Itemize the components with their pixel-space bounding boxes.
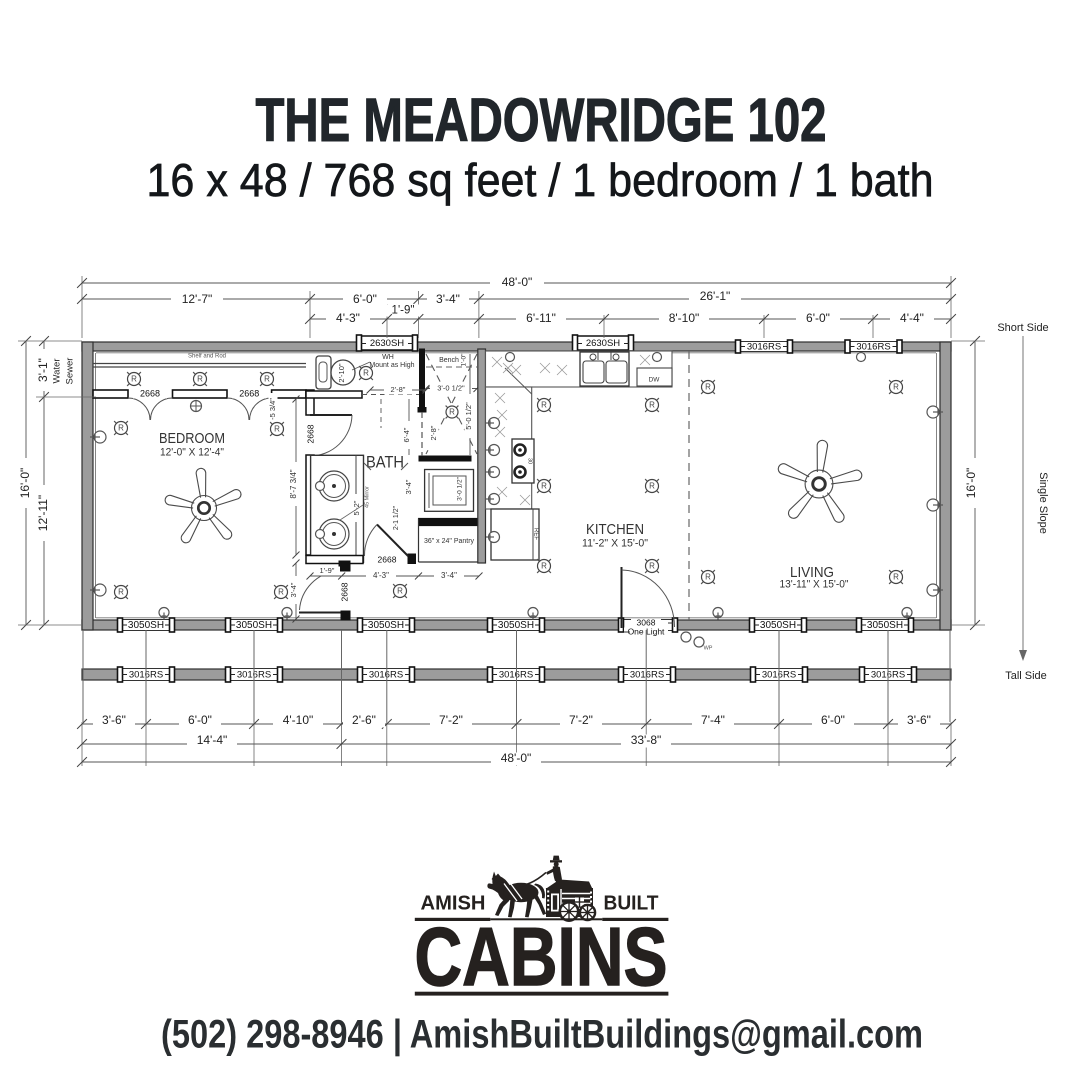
svg-text:Bench: Bench bbox=[439, 357, 459, 364]
svg-text:26'-1": 26'-1" bbox=[700, 289, 731, 303]
svg-text:WH: WH bbox=[382, 354, 394, 361]
svg-text:DW: DW bbox=[649, 377, 661, 384]
svg-text:R: R bbox=[278, 588, 284, 597]
svg-text:BEDROOM: BEDROOM bbox=[159, 430, 225, 447]
svg-text:4'-3": 4'-3" bbox=[336, 311, 360, 325]
svg-text:5'-0 1/2": 5'-0 1/2" bbox=[464, 402, 473, 430]
svg-text:R: R bbox=[649, 401, 655, 410]
svg-text:3050SH: 3050SH bbox=[760, 620, 796, 631]
svg-text:1'-0": 1'-0" bbox=[461, 353, 468, 367]
svg-text:Shelf and Rod: Shelf and Rod bbox=[188, 354, 226, 360]
svg-text:WP: WP bbox=[704, 645, 713, 651]
svg-text:R: R bbox=[449, 408, 455, 417]
svg-text:2630SH: 2630SH bbox=[370, 338, 404, 349]
svg-text:14'-4": 14'-4" bbox=[197, 733, 228, 747]
svg-text:7'-2": 7'-2" bbox=[569, 713, 593, 727]
svg-text:3050SH: 3050SH bbox=[128, 620, 164, 631]
svg-text:R: R bbox=[274, 425, 280, 434]
svg-text:3'-6": 3'-6" bbox=[907, 713, 931, 727]
svg-text:Tall Side: Tall Side bbox=[1005, 670, 1047, 682]
svg-text:2-1 1/2": 2-1 1/2" bbox=[393, 505, 400, 530]
svg-text:30: 30 bbox=[527, 458, 533, 464]
svg-text:2668: 2668 bbox=[140, 388, 160, 398]
svg-text:5'-2": 5'-2" bbox=[352, 500, 361, 515]
svg-text:3'-4": 3'-4" bbox=[404, 479, 413, 494]
svg-text:R: R bbox=[363, 369, 369, 378]
svg-text:2'-8": 2'-8" bbox=[429, 425, 438, 440]
svg-text:3'-1": 3'-1" bbox=[36, 358, 50, 382]
svg-text:R: R bbox=[541, 482, 547, 491]
svg-text:4'-4": 4'-4" bbox=[900, 311, 924, 325]
svg-text:3016RS: 3016RS bbox=[856, 342, 890, 353]
svg-text:4'-3": 4'-3" bbox=[373, 571, 389, 580]
svg-text:12'-11": 12'-11" bbox=[36, 495, 50, 531]
svg-text:R: R bbox=[118, 588, 124, 597]
svg-text:R: R bbox=[264, 375, 270, 384]
svg-text:2668: 2668 bbox=[339, 582, 349, 601]
svg-text:-5 3/4": -5 3/4" bbox=[268, 398, 277, 420]
svg-text:R: R bbox=[649, 482, 655, 491]
svg-text:45 Mirror: 45 Mirror bbox=[364, 486, 370, 508]
svg-text:R: R bbox=[131, 375, 137, 384]
svg-text:3'-0 1/2": 3'-0 1/2" bbox=[457, 476, 464, 500]
svg-text:2668: 2668 bbox=[239, 388, 259, 398]
svg-text:2'-6": 2'-6" bbox=[352, 713, 376, 727]
svg-text:R: R bbox=[893, 383, 899, 392]
svg-text:3016RS: 3016RS bbox=[369, 670, 403, 681]
svg-text:3'-4": 3'-4" bbox=[289, 582, 298, 597]
svg-text:R: R bbox=[541, 562, 547, 571]
svg-text:13'-11" X 15'-0": 13'-11" X 15'-0" bbox=[780, 578, 849, 590]
svg-text:R: R bbox=[649, 562, 655, 571]
svg-text:8'-7 3/4": 8'-7 3/4" bbox=[289, 469, 298, 498]
svg-text:REF: REF bbox=[532, 528, 538, 540]
svg-text:R: R bbox=[197, 375, 203, 384]
svg-text:3016RS: 3016RS bbox=[630, 670, 664, 681]
svg-text:R: R bbox=[541, 401, 547, 410]
svg-text:2'-8": 2'-8" bbox=[391, 385, 406, 394]
svg-text:3050SH: 3050SH bbox=[498, 620, 534, 631]
svg-text:(502) 298-8946 | AmishBuiltBui: (502) 298-8946 | AmishBuiltBuildings@gma… bbox=[161, 1013, 923, 1057]
svg-text:Single Slope: Single Slope bbox=[1037, 472, 1049, 534]
svg-text:6'-0": 6'-0" bbox=[821, 713, 845, 727]
svg-text:6'-0": 6'-0" bbox=[353, 292, 377, 306]
svg-text:3016RS: 3016RS bbox=[747, 342, 781, 353]
svg-text:48'-0": 48'-0" bbox=[502, 275, 533, 289]
svg-text:Sewer: Sewer bbox=[65, 358, 76, 385]
svg-text:3'-4": 3'-4" bbox=[441, 571, 457, 580]
svg-text:Water: Water bbox=[52, 359, 63, 384]
svg-text:3050SH: 3050SH bbox=[368, 620, 404, 631]
svg-text:33'-8": 33'-8" bbox=[631, 733, 662, 747]
svg-text:R: R bbox=[397, 587, 403, 596]
svg-text:Short Side: Short Side bbox=[997, 322, 1048, 334]
svg-text:11'-2" X 15'-0": 11'-2" X 15'-0" bbox=[582, 537, 648, 549]
svg-text:48'-0": 48'-0" bbox=[501, 751, 532, 765]
svg-text:3'-6": 3'-6" bbox=[102, 713, 126, 727]
svg-text:2668: 2668 bbox=[305, 424, 315, 443]
svg-text:6'-4": 6'-4" bbox=[402, 427, 411, 442]
svg-text:3050SH: 3050SH bbox=[236, 620, 272, 631]
svg-text:BATH: BATH bbox=[366, 453, 404, 471]
svg-text:16 x 48 / 768 sq feet / 1 bedr: 16 x 48 / 768 sq feet / 1 bedroom / 1 ba… bbox=[147, 154, 934, 206]
svg-text:R: R bbox=[705, 383, 711, 392]
svg-text:36" x 24" Pantry: 36" x 24" Pantry bbox=[424, 538, 475, 545]
svg-text:2'-10": 2'-10" bbox=[337, 363, 346, 382]
svg-text:3'-4": 3'-4" bbox=[436, 292, 460, 306]
svg-text:2630SH: 2630SH bbox=[586, 338, 620, 349]
svg-text:7'-2": 7'-2" bbox=[439, 713, 463, 727]
svg-text:12'-0" X 12'-4": 12'-0" X 12'-4" bbox=[160, 446, 224, 458]
svg-text:R: R bbox=[705, 573, 711, 582]
svg-text:6'-0": 6'-0" bbox=[188, 713, 212, 727]
svg-text:2668: 2668 bbox=[378, 554, 397, 564]
svg-text:4'-10": 4'-10" bbox=[283, 713, 314, 727]
svg-text:3050SH: 3050SH bbox=[867, 620, 903, 631]
svg-text:THE MEADOWRIDGE 102: THE MEADOWRIDGE 102 bbox=[256, 86, 827, 154]
svg-text:16'-0": 16'-0" bbox=[18, 468, 32, 499]
svg-text:1'-9": 1'-9" bbox=[392, 305, 415, 317]
svg-text:CABINS: CABINS bbox=[415, 910, 668, 1003]
svg-text:16'-0": 16'-0" bbox=[964, 468, 978, 499]
svg-text:1'-9": 1'-9" bbox=[320, 566, 335, 575]
svg-text:12'-7": 12'-7" bbox=[182, 292, 213, 306]
svg-text:7'-4": 7'-4" bbox=[701, 713, 725, 727]
svg-text:Mount as High: Mount as High bbox=[369, 362, 414, 369]
svg-text:KITCHEN: KITCHEN bbox=[586, 521, 644, 538]
svg-text:8'-10": 8'-10" bbox=[669, 311, 700, 325]
svg-text:3'-0 1/2": 3'-0 1/2" bbox=[437, 383, 465, 392]
svg-text:R: R bbox=[893, 573, 899, 582]
svg-text:R: R bbox=[118, 424, 124, 433]
svg-text:6'-11": 6'-11" bbox=[526, 311, 556, 325]
svg-text:6'-0": 6'-0" bbox=[806, 311, 830, 325]
